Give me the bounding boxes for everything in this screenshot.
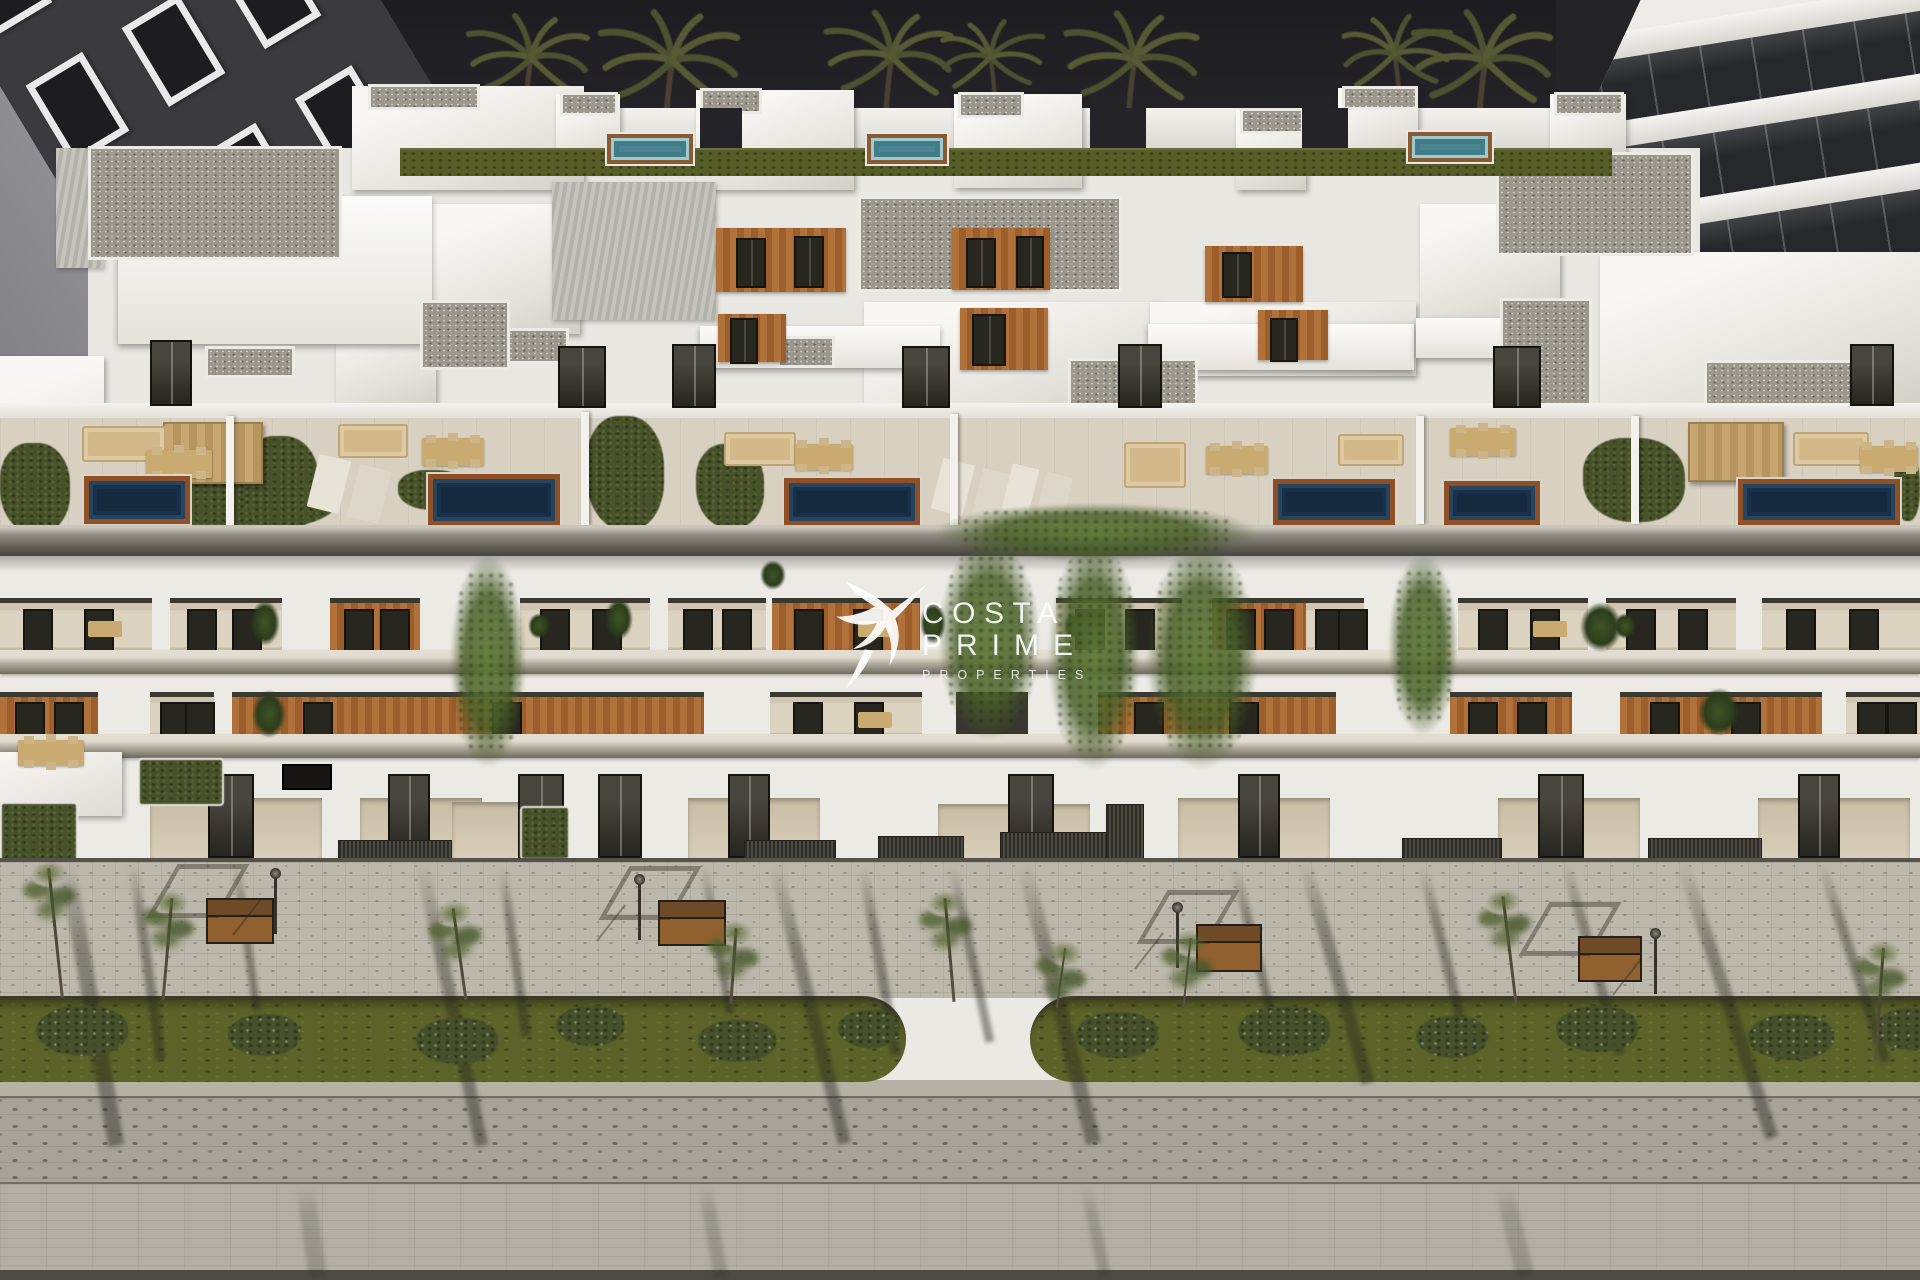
- mini-dining: [88, 621, 122, 637]
- vine-greenery: [450, 554, 526, 768]
- bush: [1748, 1014, 1834, 1060]
- vine-greenery: [1146, 543, 1258, 770]
- glass-door: [558, 346, 606, 408]
- window: [1264, 609, 1294, 652]
- window: [972, 314, 1006, 366]
- outdoor-sofa: [1124, 442, 1186, 488]
- window: [54, 702, 84, 738]
- terrace-divider: [1631, 416, 1639, 524]
- entrance-door: [1538, 774, 1584, 858]
- glass-door: [902, 346, 950, 408]
- window: [1478, 609, 1508, 652]
- roof-pitched: [552, 182, 716, 320]
- window: [187, 609, 217, 652]
- street-bench: [206, 898, 274, 944]
- window: [793, 702, 823, 738]
- roof-gravel: [958, 92, 1024, 118]
- balcony: [1306, 598, 1364, 656]
- balcony: [330, 598, 420, 656]
- window: [1338, 609, 1368, 652]
- terrace-pool: [84, 476, 190, 524]
- balcony-plant: [528, 613, 550, 639]
- bush: [416, 1018, 498, 1064]
- roof-gravel: [88, 146, 342, 260]
- potted-plant: [250, 600, 280, 646]
- terrace-pool: [428, 474, 560, 526]
- roof-gravel: [560, 92, 618, 116]
- outdoor-sofa: [724, 432, 796, 466]
- balcony: [150, 692, 214, 740]
- window: [683, 609, 713, 652]
- bush: [228, 1014, 300, 1056]
- brand-name-top: COSTA: [922, 598, 1092, 630]
- outdoor-dining-set: [422, 438, 484, 466]
- balcony: [668, 598, 766, 656]
- vine-greenery: [1388, 554, 1458, 736]
- outdoor-dining-set: [1206, 446, 1268, 474]
- window: [217, 0, 321, 49]
- window: [0, 0, 52, 36]
- potted-plant: [252, 690, 286, 738]
- rooftop-pool: [867, 134, 947, 164]
- potted-plant: [1698, 688, 1740, 736]
- ventilation-grille: [1000, 832, 1108, 860]
- window: [1016, 236, 1044, 288]
- window: [794, 236, 824, 288]
- window: [1786, 609, 1816, 652]
- street-bench: [1578, 936, 1642, 982]
- terrace-pool: [784, 478, 920, 526]
- hummingbird-logo-icon: [822, 580, 936, 692]
- glass-door: [672, 344, 716, 408]
- outdoor-sofa: [1793, 432, 1869, 466]
- roof-gravel: [420, 300, 510, 370]
- roof-gravel: [1704, 360, 1856, 406]
- window: [1857, 702, 1887, 738]
- brand-tagline: PROPERTIES: [922, 668, 1092, 682]
- roof-gravel: [205, 346, 295, 378]
- outdoor-dining-set: [18, 740, 84, 766]
- terrace-pool: [1738, 479, 1900, 525]
- balcony: [1450, 692, 1572, 740]
- roof-gravel: [1342, 86, 1418, 110]
- planter-hedge: [0, 802, 78, 864]
- potted-plant: [1580, 602, 1622, 652]
- aerial-render-apartment-complex: COSTA PRIME PROPERTIES: [0, 0, 1920, 1280]
- balcony: [0, 598, 152, 656]
- bush: [556, 1006, 624, 1046]
- road-bottom-edge: [0, 1270, 1920, 1280]
- entrance-door: [1238, 774, 1280, 858]
- outdoor-sofa: [1338, 434, 1404, 466]
- cobblestone-band: [0, 1096, 1920, 1184]
- bush: [838, 1010, 900, 1048]
- glass-door: [150, 340, 192, 406]
- brand-text: COSTA PRIME PROPERTIES: [922, 598, 1092, 682]
- bush: [1076, 1012, 1158, 1058]
- wood-facade-panel: [1205, 246, 1303, 302]
- balcony: [1606, 598, 1736, 656]
- mini-dining: [1533, 621, 1567, 637]
- roof-gravel: [1240, 108, 1304, 134]
- ventilation-grille: [1402, 838, 1502, 860]
- outdoor-sofa: [338, 424, 408, 458]
- pergola: [1688, 422, 1784, 482]
- planter-hedge: [520, 806, 570, 860]
- terrace-divider: [581, 412, 589, 526]
- roof-gravel: [368, 84, 480, 110]
- balcony: [1458, 598, 1588, 656]
- window: [344, 609, 374, 652]
- window: [794, 609, 824, 652]
- window: [722, 609, 752, 652]
- bush: [36, 1006, 128, 1056]
- window: [185, 702, 215, 738]
- rooftop-pool: [1408, 132, 1492, 162]
- rooftop-pool: [607, 134, 693, 164]
- brand-name-bottom: PRIME: [922, 630, 1092, 662]
- window: [380, 609, 410, 652]
- glass-door: [1118, 344, 1162, 408]
- road-surface: [0, 1184, 1920, 1280]
- ventilation-grille: [744, 840, 836, 860]
- window: [1468, 702, 1498, 738]
- ventilation-grille: [878, 836, 964, 860]
- ventilation-grille: [1106, 804, 1144, 860]
- roof-gravel: [1554, 92, 1624, 116]
- street-bench: [658, 900, 726, 946]
- window: [966, 238, 996, 288]
- window: [1517, 702, 1547, 738]
- terrace-pool: [1444, 481, 1540, 525]
- outdoor-dining-set: [1450, 428, 1516, 456]
- balcony: [1762, 598, 1920, 656]
- window: [1849, 609, 1879, 652]
- balcony: [0, 692, 98, 740]
- potted-plant: [760, 560, 786, 590]
- watermark: COSTA PRIME PROPERTIES: [830, 576, 1150, 716]
- bush: [1238, 1006, 1330, 1056]
- outdoor-dining-set: [795, 444, 853, 470]
- outdoor-dining-set: [146, 450, 212, 478]
- bush: [1556, 1006, 1638, 1052]
- window: [23, 609, 53, 652]
- paver-strip: [0, 1080, 1920, 1096]
- outdoor-dining-set: [1860, 446, 1918, 472]
- window: [303, 702, 333, 738]
- terrace-divider: [226, 416, 234, 526]
- facade-sign: [282, 764, 332, 790]
- bush: [1416, 1016, 1488, 1058]
- hedge: [586, 416, 664, 530]
- window: [15, 702, 45, 738]
- window: [1650, 702, 1680, 738]
- window: [1270, 318, 1298, 362]
- potted-plant: [605, 598, 633, 640]
- hedge: [0, 443, 70, 533]
- entrance-door: [1798, 774, 1840, 858]
- terrace-divider: [1416, 416, 1424, 524]
- street-lamp: [274, 878, 277, 934]
- window: [1887, 702, 1917, 738]
- window: [736, 238, 766, 288]
- balcony: [1846, 692, 1920, 740]
- glass-door: [1850, 344, 1894, 406]
- terrace-pool: [1273, 479, 1395, 525]
- street-lamp: [638, 884, 641, 940]
- ventilation-grille: [1648, 838, 1762, 860]
- window: [1678, 609, 1708, 652]
- window: [1222, 252, 1252, 298]
- planter-hedge: [138, 758, 224, 806]
- bush: [698, 1020, 776, 1062]
- street-lamp: [1654, 938, 1657, 994]
- glass-door: [1493, 346, 1541, 408]
- entrance-door: [598, 774, 642, 858]
- window: [121, 0, 225, 107]
- window: [730, 318, 758, 364]
